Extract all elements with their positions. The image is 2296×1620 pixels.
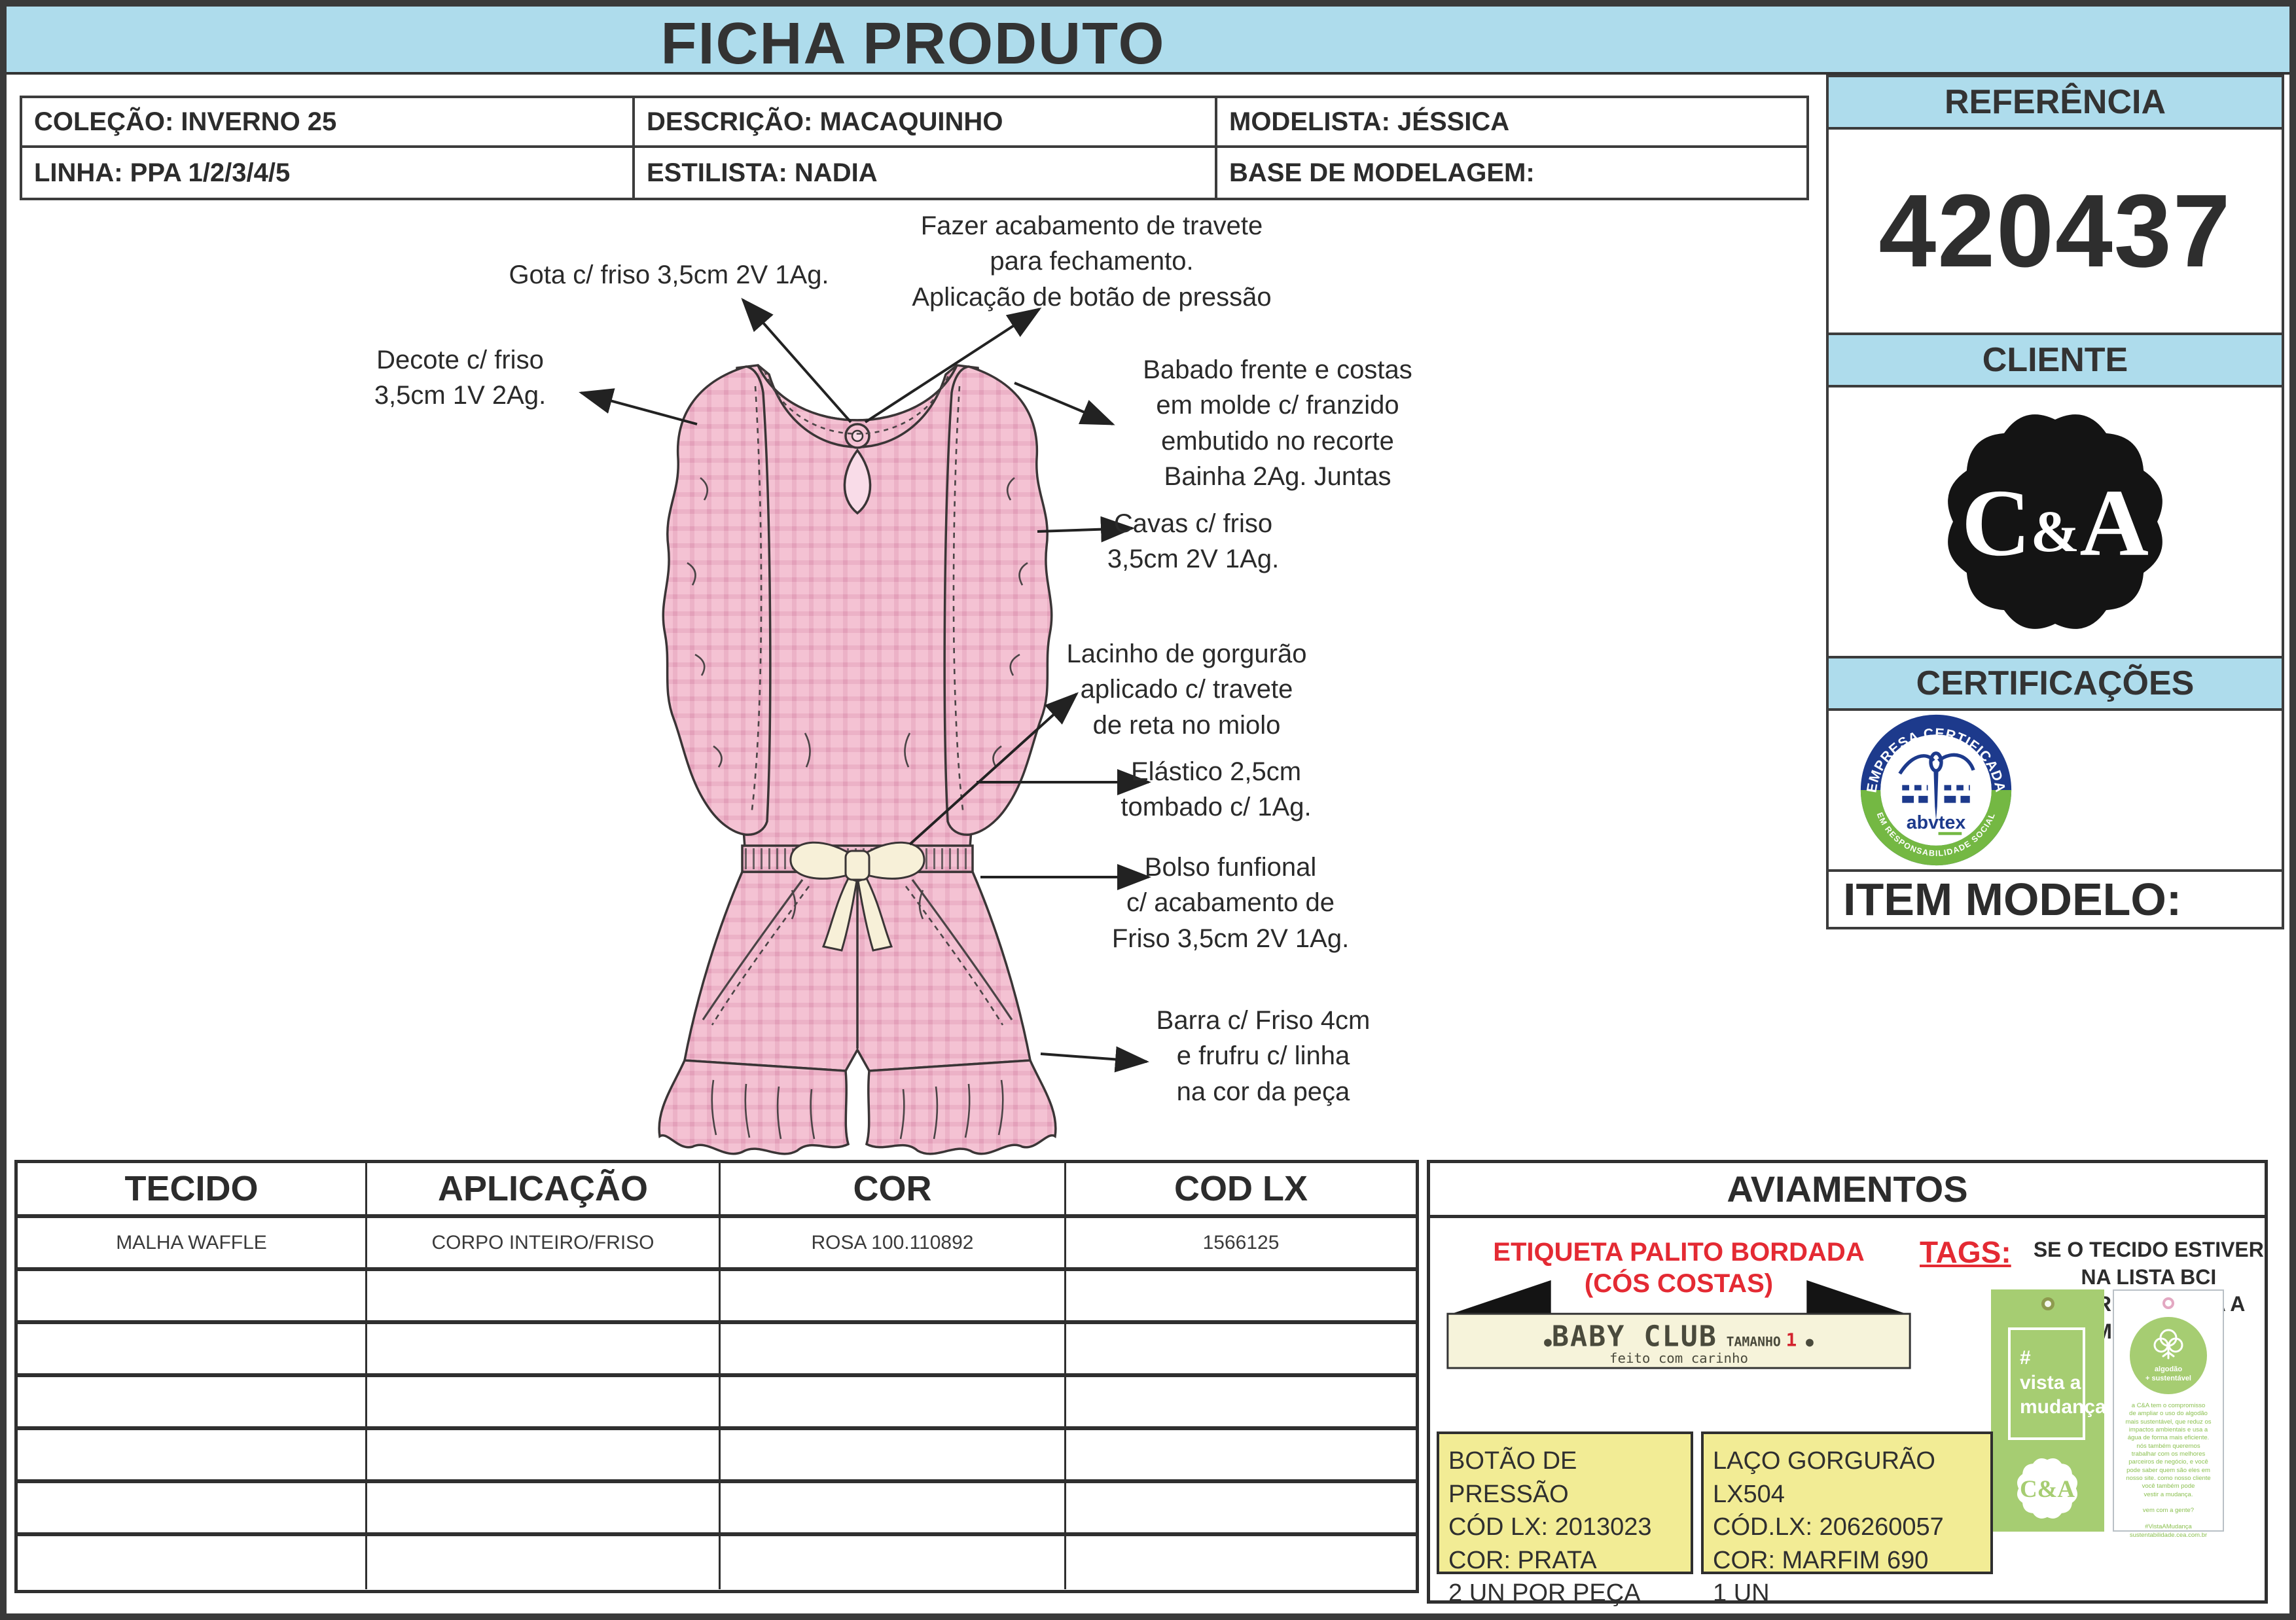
- label-fold-left: [1448, 1280, 1551, 1315]
- empty-cell: [367, 1377, 721, 1430]
- empty-cell: [1066, 1271, 1416, 1324]
- annotation-barra: Barra c/ Friso 4cm e frufru c/ linha na …: [1157, 1003, 1371, 1109]
- ca-logo: C&A: [1928, 394, 2183, 649]
- hangtag-vista-a-mudanca: # vista a mudança C&A: [1991, 1289, 2104, 1532]
- cotton-icon: [2148, 1323, 2189, 1364]
- tags-label: TAGS:: [1920, 1236, 2011, 1268]
- garment-technical-drawing: [20, 196, 1820, 1172]
- empty-cell: [18, 1377, 367, 1430]
- tag-ca-text: C&A: [2020, 1475, 2075, 1502]
- certificacoes-box: EMPRESA CERTIFICADA EM RESPONSABILIDADE …: [1826, 708, 2284, 872]
- empty-cell: [1066, 1536, 1416, 1589]
- abvtex-logo: EMPRESA CERTIFICADA EM RESPONSABILIDADE …: [1860, 714, 2012, 866]
- hem-frill-right: [867, 1060, 1056, 1154]
- cotton-badge: algodão + sustentável: [2130, 1317, 2207, 1394]
- hem-frill-left: [659, 1060, 848, 1154]
- abvtex-underline: [1939, 832, 1962, 835]
- empty-cell: [1066, 1483, 1416, 1536]
- empty-cell: [18, 1430, 367, 1483]
- col-aplicacao: APLICAÇÃO: [367, 1163, 721, 1218]
- baby-club-label: ●BABY CLUBTAMANHO1● feito com carinho: [1440, 1273, 1918, 1373]
- cliente-header: CLIENTE: [1826, 333, 2284, 387]
- empty-cell: [721, 1377, 1066, 1430]
- empty-cell: [367, 1324, 721, 1377]
- tag-slogan: # vista a mudança: [2020, 1346, 2106, 1420]
- side-ruffle-left: [663, 367, 770, 835]
- tag-ca-seal: C&A: [2011, 1454, 2083, 1522]
- annotation-bolso: Bolso funfional c/ acabamento de Friso 3…: [1112, 850, 1349, 956]
- item-modelo-box: ITEM MODELO:: [1826, 869, 2284, 929]
- empty-cell: [18, 1271, 367, 1324]
- field-descricao: DESCRIÇÃO: MACAQUINHO: [635, 98, 1217, 148]
- romper-sketch: [659, 365, 1056, 1154]
- annotation-cavas: Cavas c/ friso 3,5cm 2V 1Ag.: [1107, 506, 1279, 577]
- cell-aplicacao: CORPO INTEIRO/FRISO: [367, 1218, 721, 1271]
- field-linha: LINHA: PPA 1/2/3/4/5: [22, 148, 635, 198]
- empty-cell: [18, 1536, 367, 1589]
- empty-cell: [18, 1324, 367, 1377]
- cliente-box: C&A: [1826, 385, 2284, 658]
- empty-cell: [367, 1430, 721, 1483]
- ficha-produto-page: FICHA PRODUTO COLEÇÃO: INVERNO 25 DESCRI…: [0, 0, 2296, 1620]
- empty-cell: [721, 1536, 1066, 1589]
- field-modelista: MODELISTA: JÉSSICA: [1217, 98, 1809, 148]
- arrow-decote: [581, 393, 697, 424]
- annotation-lacinho: Lacinho de gorgurão aplicado c/ travete …: [1067, 636, 1307, 743]
- empty-cell: [18, 1483, 367, 1536]
- label-fold-right: [1806, 1280, 1910, 1315]
- empty-cell: [721, 1324, 1066, 1377]
- empty-cell: [367, 1483, 721, 1536]
- field-colecao: COLEÇÃO: INVERNO 25: [22, 98, 635, 148]
- annotation-gota: Gota c/ friso 3,5cm 2V 1Ag.: [509, 257, 829, 293]
- laco-gorgurao-box: LAÇO GORGURÃO LX504 CÓD.LX: 206260057 CO…: [1701, 1431, 1993, 1574]
- tag-hole-icon: [2162, 1297, 2174, 1309]
- label-tagline: feito com carinho: [1609, 1350, 1748, 1366]
- empty-cell: [721, 1430, 1066, 1483]
- cell-cor: ROSA 100.110892: [721, 1218, 1066, 1271]
- hangtag-algodao-sustentavel: algodão + sustentável a C&A tem o compro…: [2113, 1289, 2224, 1532]
- annotation-elastico: Elástico 2,5cm tombado c/ 1Ag.: [1121, 754, 1311, 825]
- botao-pressao-box: BOTÃO DE PRESSÃO CÓD LX: 2013023 COR: PR…: [1437, 1431, 1693, 1574]
- field-base-modelagem: BASE DE MODELAGEM:: [1217, 148, 1809, 198]
- tag-body-text: a C&A tem o compromisso de ampliar o uso…: [2118, 1402, 2219, 1539]
- cotton-badge-line1: algodão: [2130, 1365, 2207, 1374]
- empty-cell: [1066, 1324, 1416, 1377]
- empty-cell: [367, 1271, 721, 1324]
- tag-hole-icon: [2041, 1297, 2054, 1310]
- empty-cell: [367, 1536, 721, 1589]
- referencia-header: REFERÊNCIA: [1826, 75, 2284, 130]
- col-codlx: COD LX: [1066, 1163, 1416, 1218]
- empty-cell: [1066, 1377, 1416, 1430]
- empty-cell: [1066, 1430, 1416, 1483]
- aviamentos-panel: AVIAMENTOS ETIQUETA PALITO BORDADA (CÓS …: [1427, 1160, 2268, 1604]
- annotation-decote: Decote c/ friso 3,5cm 1V 2Ag.: [374, 342, 546, 414]
- referencia-value: 420437: [1878, 172, 2231, 291]
- annotation-fazer: Fazer acabamento de travete para fechame…: [912, 208, 1271, 315]
- field-estilista: ESTILISTA: NADIA: [635, 148, 1217, 198]
- referencia-box: 420437: [1826, 127, 2284, 335]
- materials-table: TECIDO APLICAÇÃO COR COD LX MALHA WAFFLE…: [14, 1160, 1419, 1593]
- annotation-babado: Babado frente e costas em molde c/ franz…: [1143, 352, 1412, 495]
- col-tecido: TECIDO: [18, 1163, 367, 1218]
- empty-cell: [721, 1271, 1066, 1324]
- cotton-badge-line2: + sustentável: [2130, 1375, 2207, 1383]
- empty-cell: [721, 1483, 1066, 1536]
- cell-codlx: 1566125: [1066, 1218, 1416, 1271]
- aviamentos-title: AVIAMENTOS: [1430, 1163, 2265, 1218]
- abvtex-name: abvtex: [1907, 812, 1966, 833]
- cell-tecido: MALHA WAFFLE: [18, 1218, 367, 1271]
- certificacoes-header: CERTIFICAÇÕES: [1826, 656, 2284, 711]
- col-cor: COR: [721, 1163, 1066, 1218]
- arrow-barra: [1041, 1054, 1147, 1062]
- page-title: FICHA PRODUTO: [7, 10, 1820, 78]
- header-info-table: COLEÇÃO: INVERNO 25 DESCRIÇÃO: MACAQUINH…: [20, 96, 1809, 200]
